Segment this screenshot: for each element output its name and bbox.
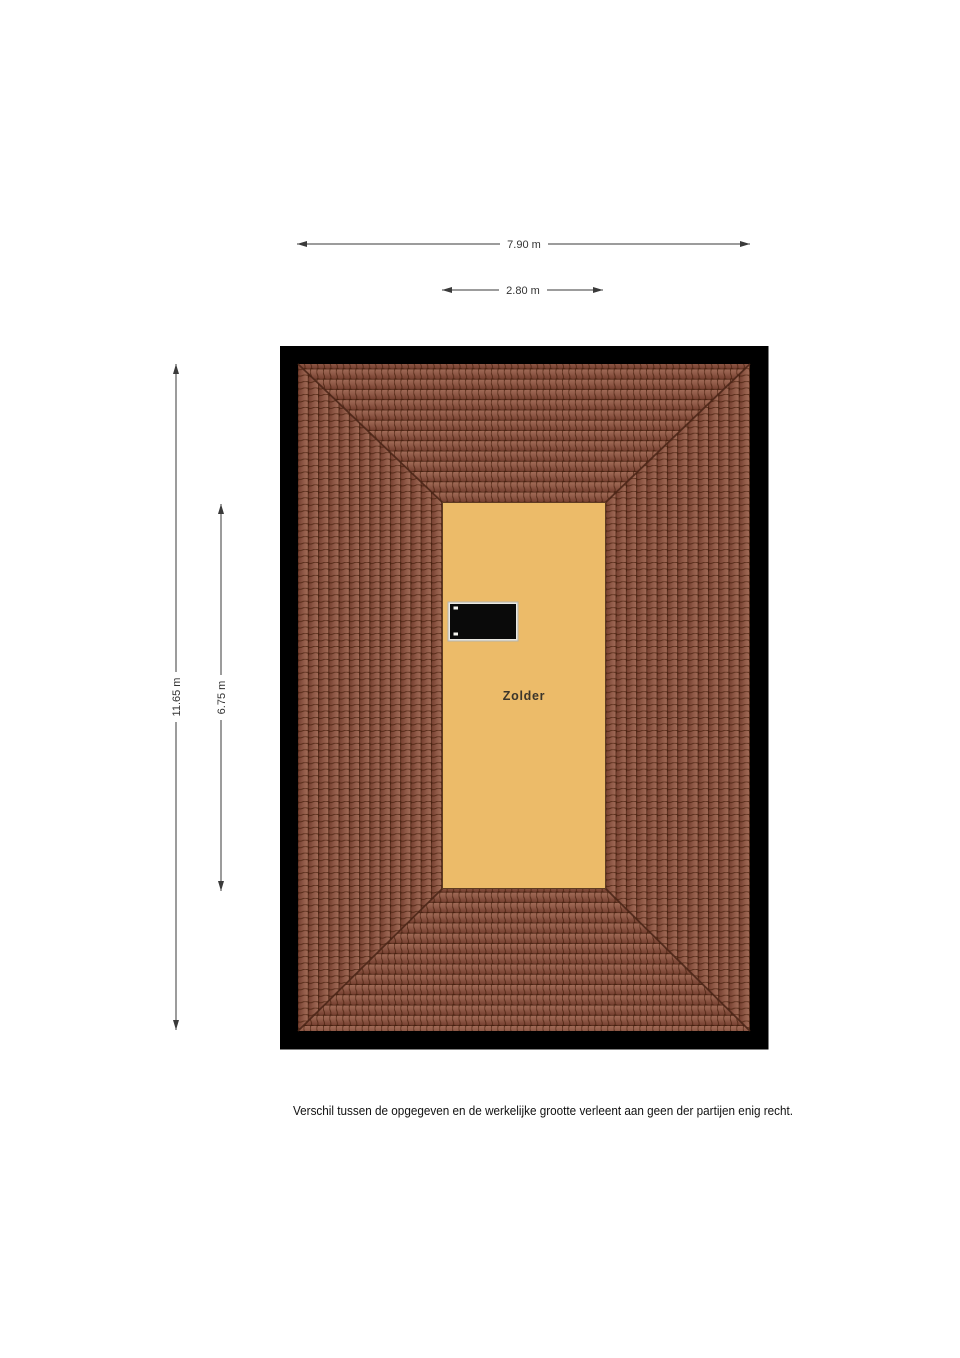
svg-text:11.65 m: 11.65 m [171,678,183,717]
svg-text:Zolder: Zolder [503,689,545,703]
svg-text:2.80 m: 2.80 m [506,285,540,297]
svg-text:6.75 m: 6.75 m [216,681,228,715]
svg-text:7.90 m: 7.90 m [507,239,541,251]
svg-text:Verschil tussen de opgegeven e: Verschil tussen de opgegeven en de werke… [293,1104,793,1118]
